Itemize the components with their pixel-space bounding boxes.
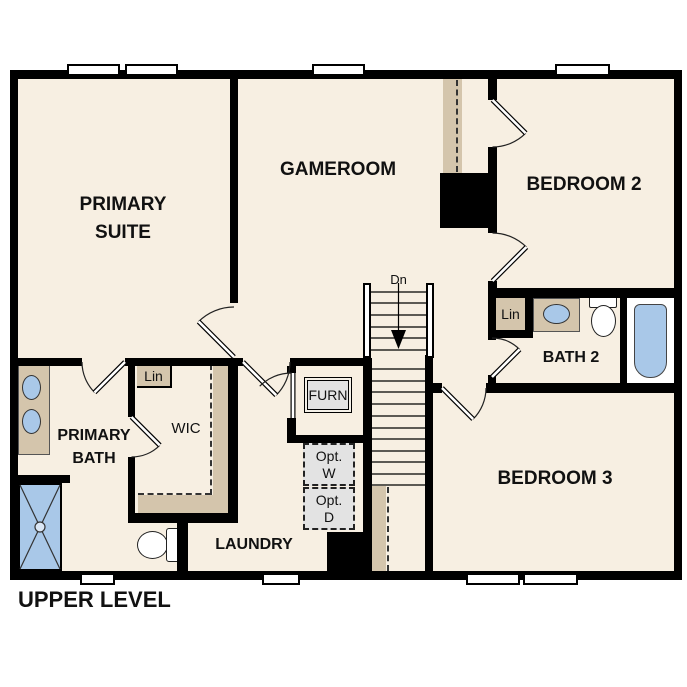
- door-bedroom2-upper: [493, 100, 526, 147]
- door-bedroom2-lower: [493, 233, 527, 281]
- room-label-wic: WIC: [166, 420, 206, 437]
- plan-title: UPPER LEVEL: [18, 587, 171, 613]
- shower-detail: [20, 485, 60, 569]
- door-furnace-closet: [260, 373, 293, 418]
- room-label-primary-bath: PRIMARY BATH: [49, 424, 139, 470]
- plan-linework: [0, 0, 687, 687]
- room-label-bedroom2: BEDROOM 2: [504, 174, 664, 196]
- primary-suite-line1: PRIMARY: [48, 191, 198, 219]
- door-bedroom3: [442, 388, 486, 419]
- primary-bath-line1: PRIMARY: [49, 424, 139, 447]
- room-label-laundry: LAUNDRY: [206, 536, 302, 554]
- door-primary-suite: [199, 307, 234, 357]
- door-laundry: [243, 362, 290, 395]
- room-label-gameroom: GAMEROOM: [258, 159, 418, 181]
- stair-treads: [371, 283, 426, 485]
- room-label-bedroom3: BEDROOM 3: [475, 468, 635, 490]
- door-primary-bath: [82, 362, 125, 392]
- door-bath2: [492, 338, 520, 377]
- stairs-down-label: Dn: [383, 272, 414, 287]
- stair-down-arrow: [391, 330, 406, 349]
- room-label-primary-suite: PRIMARY SUITE: [48, 191, 198, 247]
- floor-plan: Lin Lin FURN Opt. W Opt. D: [0, 0, 687, 687]
- primary-bath-line2: BATH: [49, 447, 139, 470]
- primary-suite-line2: SUITE: [48, 219, 198, 247]
- room-label-bath2: BATH 2: [536, 349, 606, 367]
- shower-drain: [35, 522, 45, 532]
